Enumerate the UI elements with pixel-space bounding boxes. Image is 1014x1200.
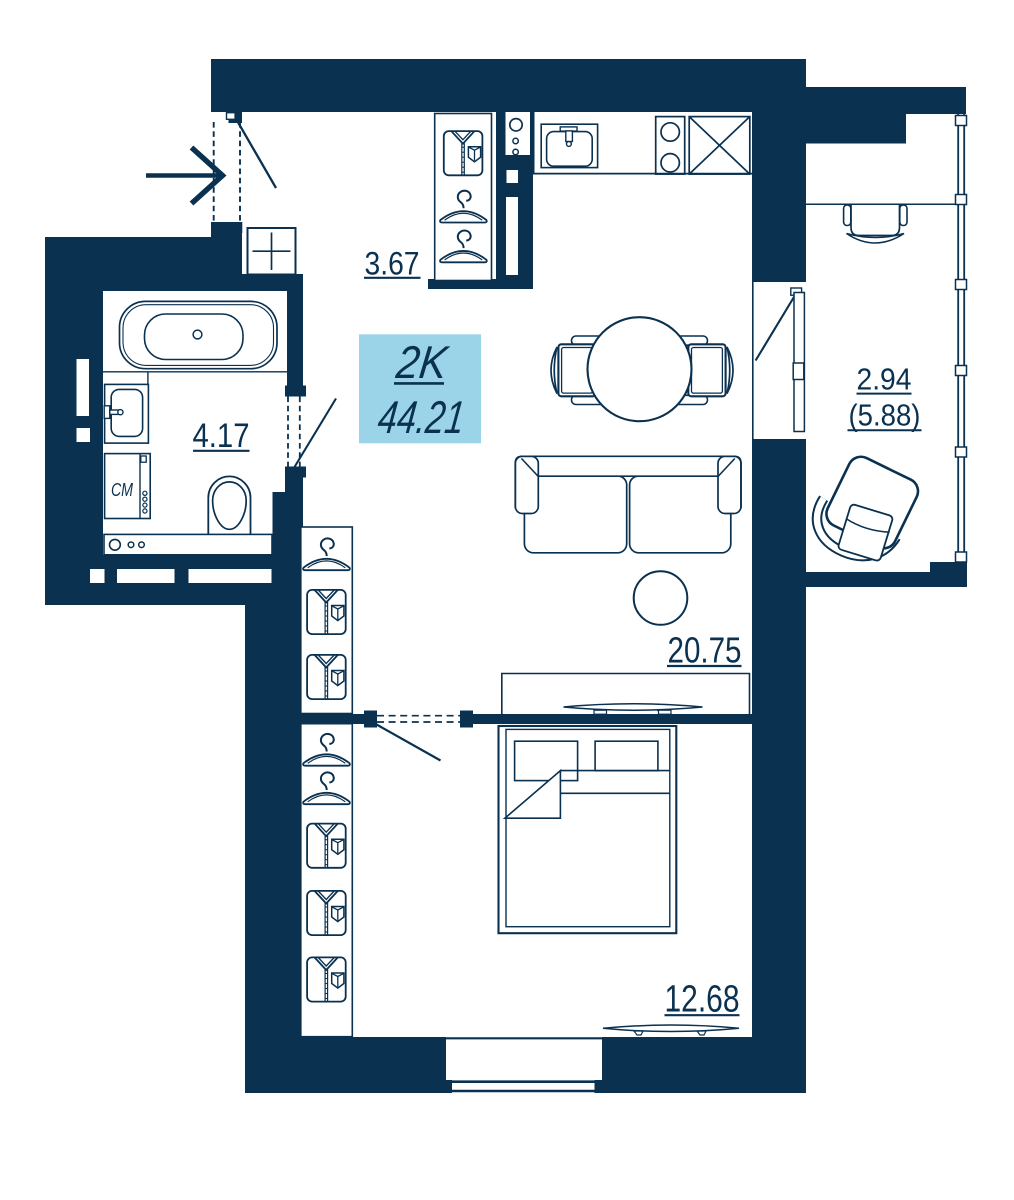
svg-text:2.94: 2.94 [857, 363, 912, 397]
svg-text:20.75: 20.75 [668, 630, 742, 671]
svg-text:СМ: СМ [111, 480, 133, 500]
svg-text:44.21: 44.21 [375, 391, 467, 443]
svg-text:(5.88): (5.88) [849, 399, 921, 433]
svg-text:2K: 2K [393, 336, 452, 388]
svg-text:4.17: 4.17 [193, 417, 250, 455]
svg-text:3.67: 3.67 [365, 246, 420, 282]
